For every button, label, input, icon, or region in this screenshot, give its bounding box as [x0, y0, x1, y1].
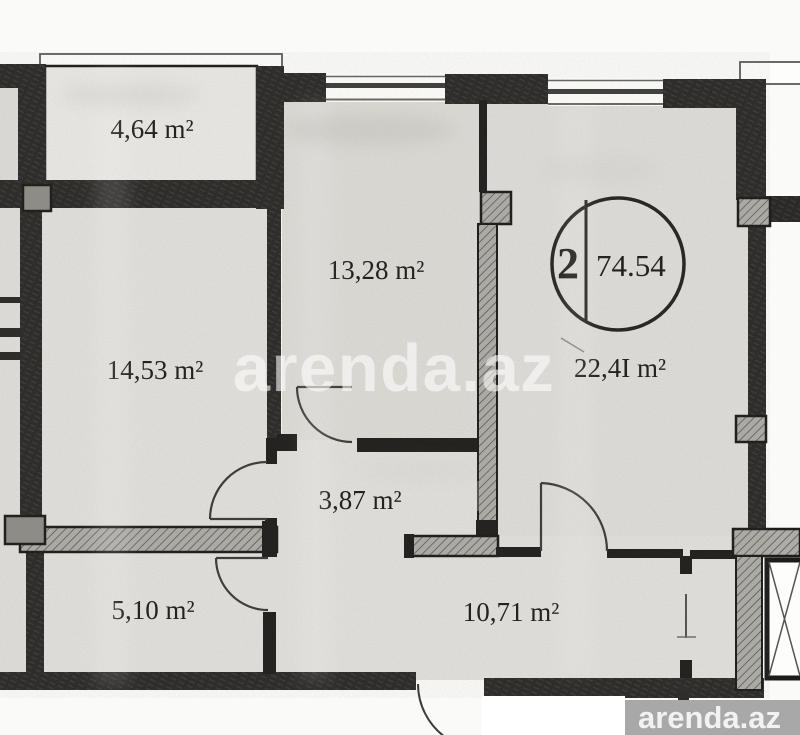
svg-text:arenda.az: arenda.az — [233, 331, 556, 406]
svg-text:arenda.az: arenda.az — [638, 700, 781, 735]
